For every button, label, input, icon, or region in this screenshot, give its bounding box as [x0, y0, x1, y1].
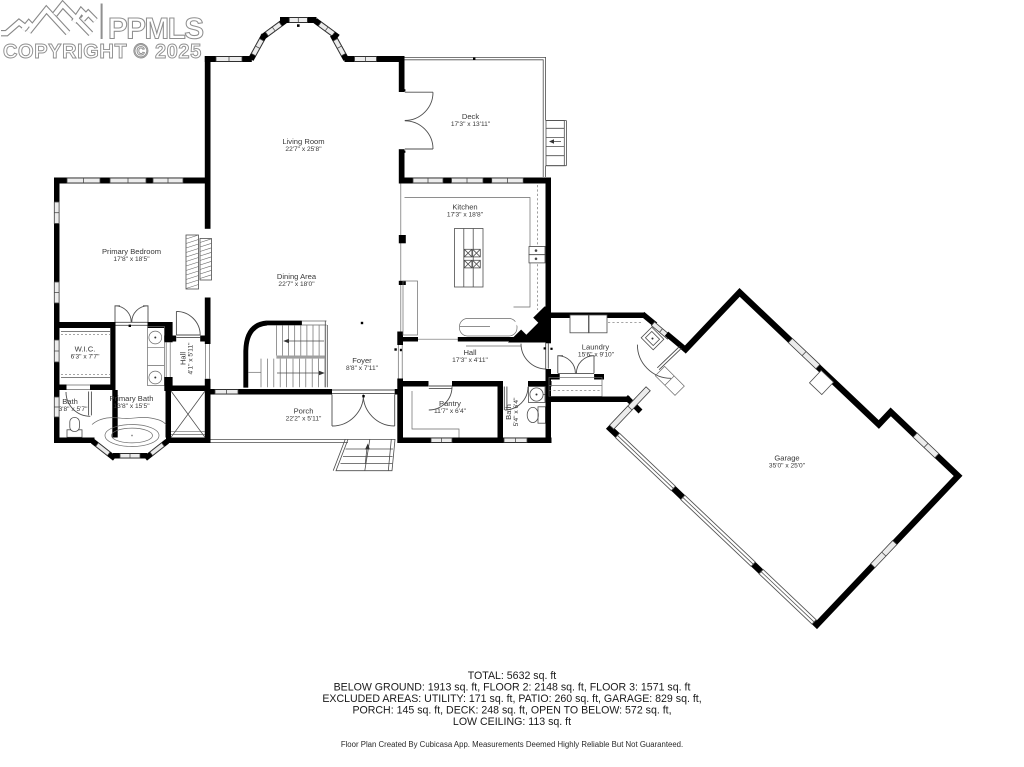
svg-text:W.I.C.: W.I.C. [75, 345, 96, 354]
svg-text:Pantry: Pantry [439, 399, 461, 408]
svg-text:BELOW GROUND: 1913 sq. ft, FLO: BELOW GROUND: 1913 sq. ft, FLOOR 2: 2148… [334, 682, 691, 694]
svg-text:Foyer: Foyer [352, 356, 372, 365]
svg-text:Living Room: Living Room [282, 137, 324, 146]
svg-text:15'6" x 9'10": 15'6" x 9'10" [578, 352, 615, 359]
svg-text:PORCH: 145 sq. ft, DECK: 248 s: PORCH: 145 sq. ft, DECK: 248 sq. ft, OPE… [352, 705, 671, 717]
svg-text:35'0" x 25'0": 35'0" x 25'0" [769, 463, 806, 470]
svg-text:22'2" x 5'11": 22'2" x 5'11" [286, 416, 322, 423]
svg-text:Floor Plan Created By Cubicasa: Floor Plan Created By Cubicasa App. Meas… [341, 740, 683, 749]
svg-text:11'7" x 6'4": 11'7" x 6'4" [434, 408, 467, 415]
svg-text:Laundry: Laundry [582, 343, 610, 352]
svg-text:13'8" x 15'5": 13'8" x 15'5" [113, 403, 150, 410]
svg-text:Hall: Hall [463, 348, 476, 357]
svg-text:Porch: Porch [294, 407, 314, 416]
svg-text:LOW CEILING: 113 sq. ft: LOW CEILING: 113 sq. ft [453, 716, 571, 728]
svg-text:22'7" x 18'0": 22'7" x 18'0" [278, 281, 315, 288]
svg-text:Garage: Garage [774, 454, 799, 463]
svg-text:COPYRIGHT © 2025: COPYRIGHT © 2025 [3, 41, 202, 63]
svg-text:Hall: Hall [179, 352, 188, 365]
svg-text:17'8" x 18'5": 17'8" x 18'5" [113, 256, 150, 263]
svg-text:Dining Area: Dining Area [277, 272, 317, 281]
svg-text:17'3" x 13'11": 17'3" x 13'11" [451, 121, 491, 128]
svg-text:Kitchen: Kitchen [452, 203, 477, 212]
svg-text:6'3" x 7'7": 6'3" x 7'7" [71, 354, 100, 361]
svg-text:5'4" x 6'4": 5'4" x 6'4" [513, 397, 520, 426]
svg-text:Bath: Bath [504, 404, 513, 420]
svg-text:Primary Bath: Primary Bath [110, 394, 154, 403]
svg-text:EXCLUDED AREAS: UTILITY: 171 s: EXCLUDED AREAS: UTILITY: 171 sq. ft, PAT… [322, 693, 701, 705]
svg-text:22'7" x 25'8": 22'7" x 25'8" [285, 146, 322, 153]
svg-text:Primary Bedroom: Primary Bedroom [102, 247, 161, 256]
svg-text:TOTAL: 5632 sq. ft: TOTAL: 5632 sq. ft [468, 670, 557, 682]
svg-text:17'3" x 18'8": 17'3" x 18'8" [447, 212, 484, 219]
svg-text:4'1" x 5'11": 4'1" x 5'11" [188, 342, 195, 375]
svg-text:8'8" x 7'11": 8'8" x 7'11" [346, 365, 379, 372]
svg-text:17'3" x 4'11": 17'3" x 4'11" [452, 357, 488, 364]
svg-text:Deck: Deck [462, 112, 480, 121]
